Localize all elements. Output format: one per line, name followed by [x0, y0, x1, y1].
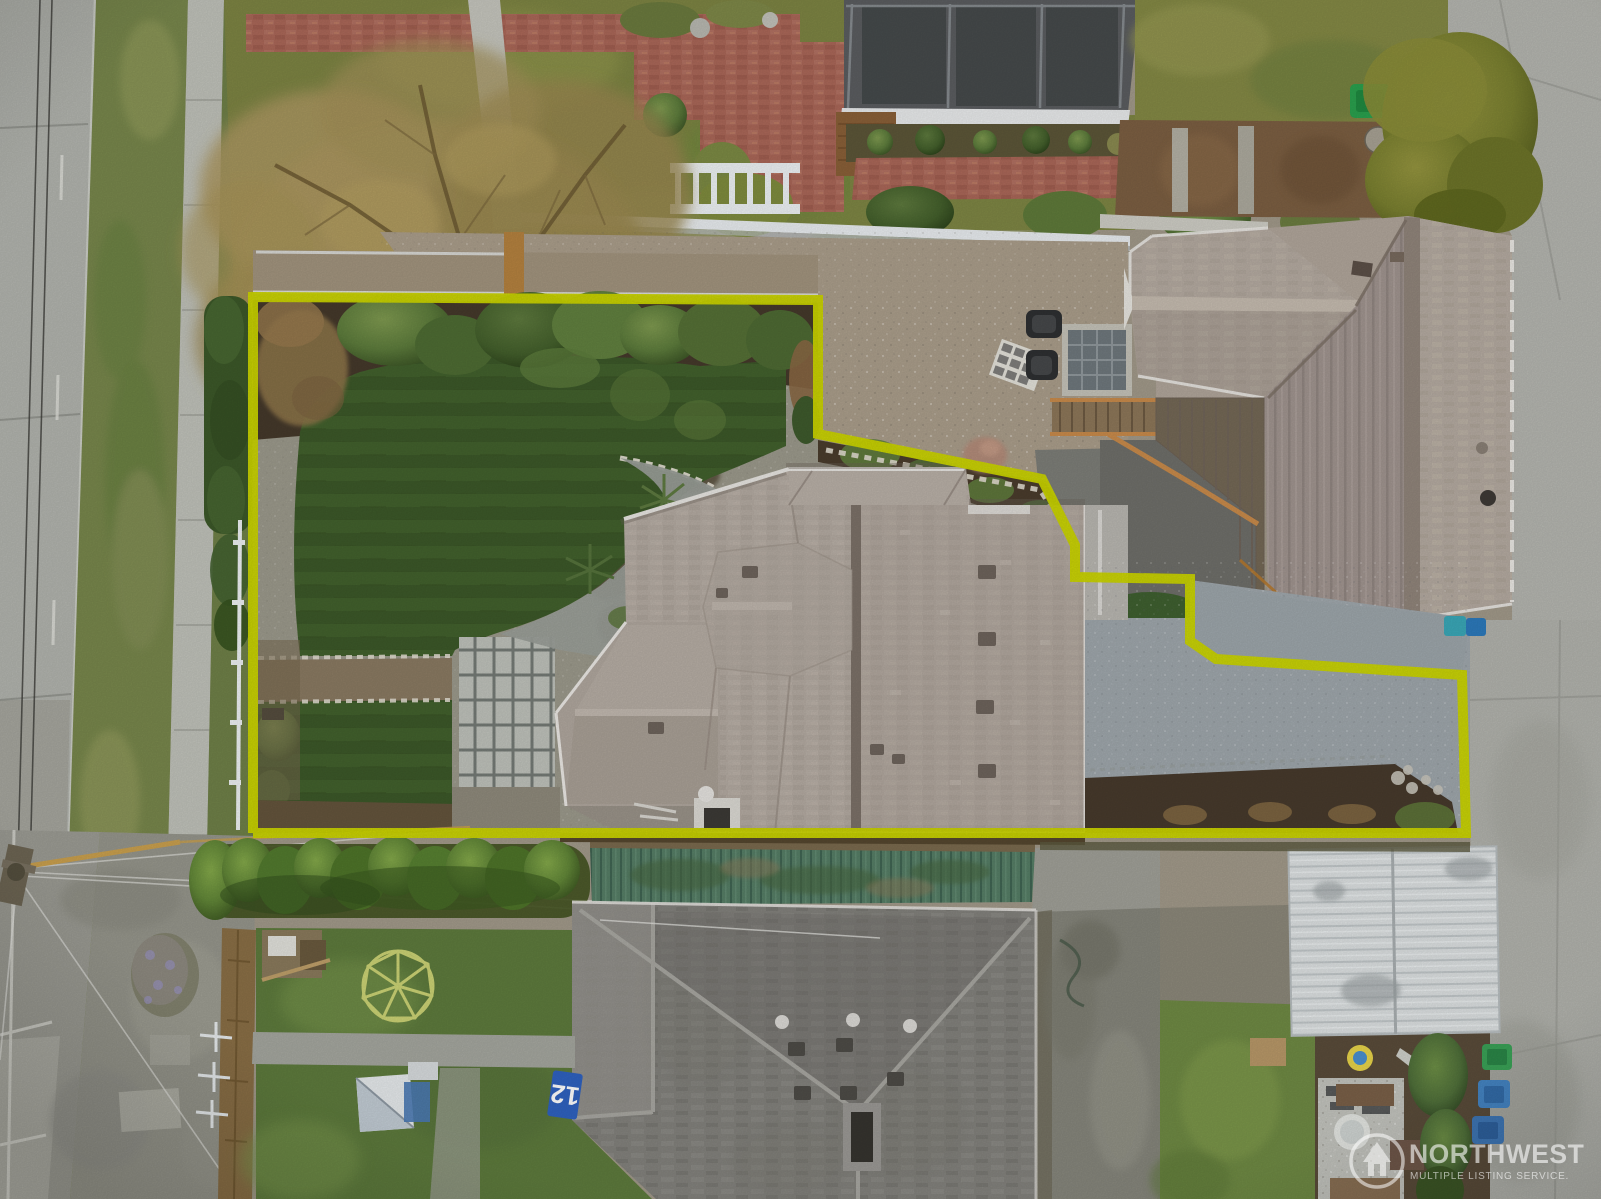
- svg-text:MULTIPLE LISTING SERVICE.: MULTIPLE LISTING SERVICE.: [1410, 1171, 1569, 1182]
- svg-text:NORTHWEST: NORTHWEST: [1409, 1139, 1584, 1169]
